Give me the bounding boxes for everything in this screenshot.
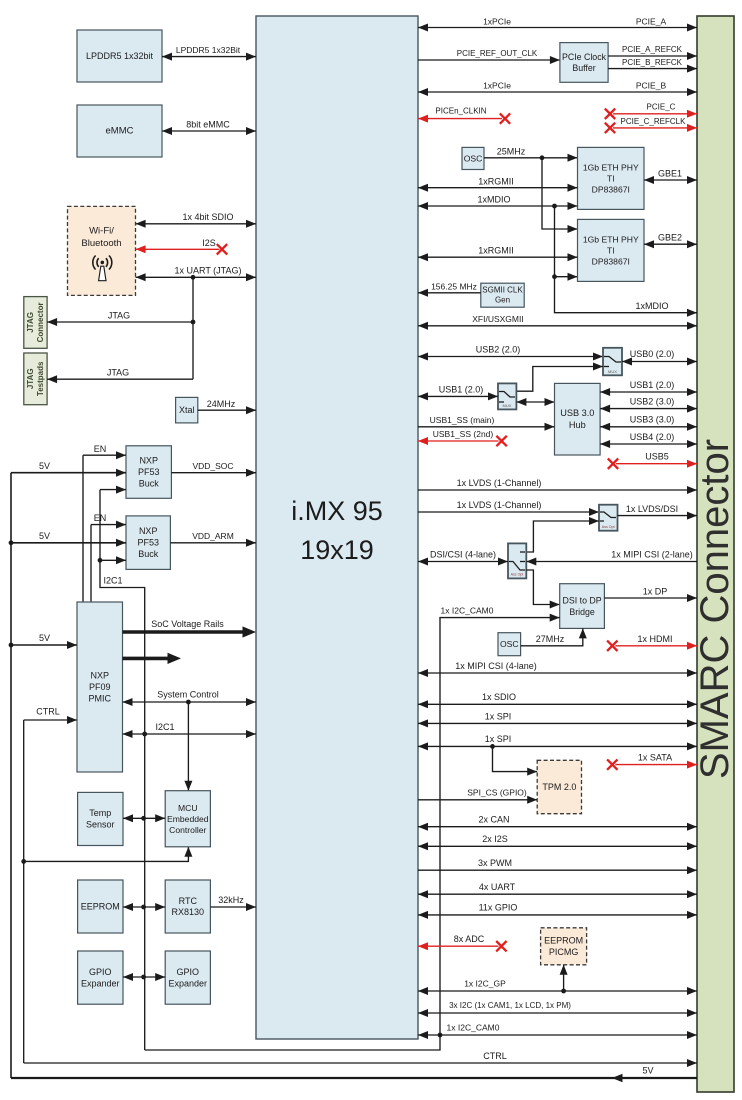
svg-text:1xMDIO: 1xMDIO [477,195,510,205]
svg-text:Buck: Buck [138,549,159,559]
svg-text:VDD_ARM: VDD_ARM [192,531,234,541]
svg-text:Ass Opt: Ass Opt [511,573,524,577]
svg-text:1x HDMI: 1x HDMI [637,634,672,644]
svg-text:5V: 5V [39,633,50,643]
svg-text:Bridge: Bridge [569,607,595,617]
svg-text:I2S: I2S [202,238,216,248]
svg-text:JTAG: JTAG [26,312,35,333]
svg-text:1x UART (JTAG): 1x UART (JTAG) [174,266,241,276]
svg-text:25MHz: 25MHz [497,147,526,157]
svg-text:MUX: MUX [503,403,512,408]
svg-text:1x LVDS (1-Channel): 1x LVDS (1-Channel) [457,478,542,488]
svg-text:MUX: MUX [608,369,617,374]
svg-text:DSI to DP: DSI to DP [563,595,602,605]
svg-text:USB2 (3.0): USB2 (3.0) [630,397,675,407]
svg-text:1x I2C_GP: 1x I2C_GP [464,979,506,989]
svg-text:1xRGMII: 1xRGMII [478,177,514,187]
svg-text:PCIE_B_REFCK: PCIE_B_REFCK [622,58,683,67]
svg-text:Embedded: Embedded [167,814,209,824]
svg-text:DP83867I: DP83867I [592,184,630,194]
svg-text:Testpads: Testpads [36,361,45,396]
svg-text:1x SDIO: 1x SDIO [482,692,516,702]
svg-text:JTAG: JTAG [107,368,129,378]
svg-text:USB5: USB5 [645,452,669,462]
svg-text:Connector: Connector [36,302,45,342]
svg-text:Expander: Expander [169,978,208,988]
svg-text:1x 4bit SDIO: 1x 4bit SDIO [182,212,233,222]
svg-text:Buck: Buck [139,479,160,489]
svg-text:8x ADC: 8x ADC [454,934,485,944]
svg-text:Sensor: Sensor [86,820,115,830]
svg-text:USB0 (2.0): USB0 (2.0) [630,349,675,359]
svg-text:eMMC: eMMC [106,126,134,137]
svg-text:USB2 (2.0): USB2 (2.0) [476,345,521,355]
svg-text:MCU: MCU [178,803,198,813]
svg-text:PF09: PF09 [89,682,111,692]
svg-text:1x I2C_CAM0: 1x I2C_CAM0 [441,606,494,616]
svg-text:2x CAN: 2x CAN [478,815,509,825]
svg-text:24MHz: 24MHz [207,399,236,409]
svg-text:GPIO: GPIO [177,967,200,977]
svg-text:1x I2C_CAM0: 1x I2C_CAM0 [447,1023,500,1033]
svg-text:USB4 (2.0): USB4 (2.0) [630,432,675,442]
svg-text:SoC Voltage Rails: SoC Voltage Rails [151,619,224,629]
svg-text:EEPROM: EEPROM [81,902,120,912]
svg-text:3x I2C (1x CAM1, 1x LCD, 1x PM: 3x I2C (1x CAM1, 1x LCD, 1x PM) [449,1001,571,1010]
svg-text:GBE1: GBE1 [658,169,682,179]
svg-text:USB1 (2.0): USB1 (2.0) [439,385,484,395]
svg-text:1x SPI: 1x SPI [485,712,512,722]
svg-text:2x I2S: 2x I2S [482,834,508,844]
svg-text:4x UART: 4x UART [479,882,516,892]
svg-text:PCIE_A: PCIE_A [636,17,667,27]
svg-text:1x MIPI CSI (2-lane): 1x MIPI CSI (2-lane) [611,550,693,560]
svg-text:PICMG: PICMG [549,947,579,957]
svg-text:DSI/CSI (4-lane): DSI/CSI (4-lane) [430,550,496,560]
svg-text:1xPCIe: 1xPCIe [483,81,511,91]
svg-text:RTC: RTC [179,896,198,906]
svg-text:11x GPIO: 11x GPIO [479,903,518,913]
svg-text:USB3 (3.0): USB3 (3.0) [630,415,675,425]
svg-text:1xMDIO: 1xMDIO [635,301,668,311]
svg-text:NXP: NXP [139,455,158,465]
svg-text:PMIC: PMIC [89,694,112,704]
svg-text:PCIe Clock: PCIe Clock [562,52,607,62]
svg-text:I2C1: I2C1 [155,722,174,732]
svg-text:JTAG: JTAG [108,311,130,321]
svg-text:Controller: Controller [169,825,206,835]
svg-text:Gen: Gen [495,296,510,305]
svg-text:USB1 (2.0): USB1 (2.0) [630,380,675,390]
svg-text:RX8130: RX8130 [172,907,205,917]
svg-text:PICEn_CLKIN: PICEn_CLKIN [435,107,486,116]
svg-text:PCIE_A_REFCK: PCIE_A_REFCK [622,45,683,54]
svg-text:XFI/USXGMII: XFI/USXGMII [472,314,523,324]
svg-text:GBE2: GBE2 [658,233,682,243]
svg-text:32kHz: 32kHz [218,895,244,905]
svg-text:1x DP: 1x DP [643,587,668,597]
svg-text:CTRL: CTRL [483,1051,507,1061]
svg-text:Xtal: Xtal [179,405,195,415]
svg-text:TPM 2.0: TPM 2.0 [542,782,576,792]
svg-text:LPDDR5 1x32Bit: LPDDR5 1x32Bit [176,45,241,55]
svg-text:i.MX 95: i.MX 95 [291,496,383,526]
svg-text:5V: 5V [39,531,50,541]
svg-text:EEPROM: EEPROM [544,936,583,946]
svg-text:System Control: System Control [157,690,219,700]
svg-text:1x LVDS (1-Channel): 1x LVDS (1-Channel) [457,500,542,510]
svg-text:8bit eMMC: 8bit eMMC [186,120,230,130]
svg-text:TI: TI [607,173,615,183]
svg-text:LPDDR5 1x32bit: LPDDR5 1x32bit [86,51,154,61]
svg-text:Bluetooth: Bluetooth [81,238,121,249]
svg-text:USB 3.0: USB 3.0 [560,408,594,418]
svg-text:USB1_SS (2nd): USB1_SS (2nd) [433,429,494,439]
svg-text:USB1_SS (main): USB1_SS (main) [430,415,495,425]
svg-text:DP83867I: DP83867I [592,256,630,266]
svg-text:GPIO: GPIO [89,967,112,977]
svg-text:1x LVDS/DSI: 1x LVDS/DSI [626,504,678,514]
svg-text:1xRGMII: 1xRGMII [478,246,514,256]
svg-text:27MHz: 27MHz [536,634,565,644]
svg-text:156.25 MHz: 156.25 MHz [431,282,477,292]
svg-text:Ass Opt: Ass Opt [602,525,615,529]
svg-text:PF53: PF53 [138,467,160,477]
svg-text:Wi-Fi/: Wi-Fi/ [89,226,114,237]
svg-text:NXP: NXP [91,670,110,680]
svg-text:1xPCIe: 1xPCIe [483,17,511,27]
svg-text:5V: 5V [642,1066,653,1076]
svg-text:1Gb ETH PHY: 1Gb ETH PHY [583,162,639,172]
svg-text:SMARC Connector: SMARC Connector [693,439,737,779]
svg-text:19x19: 19x19 [300,535,374,565]
svg-text:JTAG: JTAG [26,368,35,389]
svg-text:I2C1: I2C1 [103,576,122,586]
svg-text:3x PWM: 3x PWM [478,858,512,868]
svg-text:1x SATA: 1x SATA [638,753,672,763]
svg-text:Expander: Expander [81,978,120,988]
svg-text:Hub: Hub [569,420,586,430]
svg-text:1Gb ETH PHY: 1Gb ETH PHY [583,234,639,244]
svg-text:PCIE_C_REFCLK: PCIE_C_REFCLK [621,117,687,126]
svg-text:OSC: OSC [500,639,519,649]
svg-text:5V: 5V [39,461,50,471]
svg-text:1x SPI: 1x SPI [485,734,512,744]
svg-text:EN: EN [94,444,107,454]
svg-text:OSC: OSC [464,154,483,164]
svg-text:SPI_CS (GPIO): SPI_CS (GPIO) [467,788,527,798]
svg-text:CTRL: CTRL [36,707,60,717]
svg-text:Buffer: Buffer [572,63,595,73]
svg-text:TI: TI [607,245,615,255]
svg-text:SGMII CLK: SGMII CLK [482,286,523,295]
svg-text:VDD_SOC: VDD_SOC [192,461,233,471]
svg-text:PCIE_C: PCIE_C [647,103,676,112]
svg-text:PF53: PF53 [137,538,159,548]
svg-text:PCIE_REF_OUT_CLK: PCIE_REF_OUT_CLK [457,49,538,58]
svg-text:NXP: NXP [139,526,158,536]
svg-text:PCIE_B: PCIE_B [636,81,667,91]
svg-text:1x MIPI CSI (4-lane): 1x MIPI CSI (4-lane) [455,661,537,671]
svg-text:Temp: Temp [89,808,111,818]
